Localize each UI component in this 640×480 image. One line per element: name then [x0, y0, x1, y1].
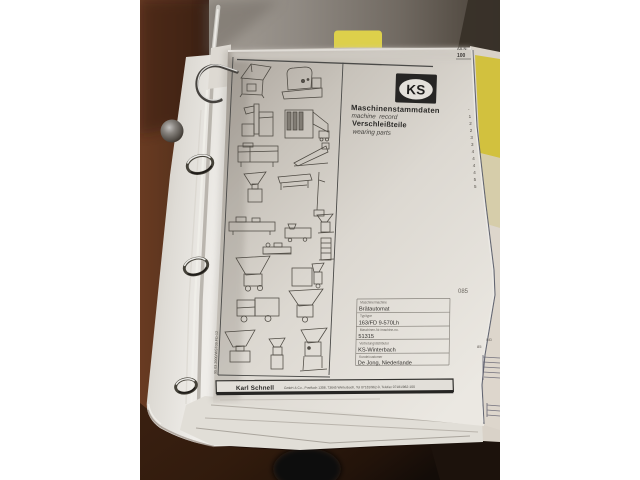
svg-text:100: 100 — [457, 53, 466, 59]
svg-text:Maschinen-Nr./machine-no.: Maschinen-Nr./machine-no. — [360, 328, 399, 332]
svg-text:AA.N:: AA.N: — [457, 46, 467, 51]
svg-text:IND: IND — [486, 338, 493, 342]
svg-text:Vertretung/distributor: Vertretung/distributor — [359, 341, 390, 345]
svg-text:51315: 51315 — [358, 334, 374, 340]
svg-text:Brätautomat: Brätautomat — [359, 306, 390, 312]
svg-text:KS: KS — [406, 82, 426, 98]
svg-text:85: 85 — [477, 344, 482, 349]
svg-text:085: 085 — [458, 289, 469, 295]
svg-text:Karl Schnell: Karl Schnell — [236, 385, 274, 392]
svg-text:163/FD 9-570Lh: 163/FD 9-570Lh — [359, 320, 399, 326]
svg-text:Kunde/customer: Kunde/customer — [359, 355, 383, 359]
svg-text:KS-Winterbach: KS-Winterbach — [358, 347, 396, 353]
svg-text:Verschleißteile: Verschleißteile — [352, 119, 407, 130]
svg-text:Typ/type: Typ/type — [360, 314, 372, 318]
svg-text:De Jong, Niederlande: De Jong, Niederlande — [358, 360, 412, 366]
svg-text:Maschine/machine: Maschine/machine — [360, 300, 387, 304]
svg-text:wearing parts: wearing parts — [352, 129, 391, 137]
